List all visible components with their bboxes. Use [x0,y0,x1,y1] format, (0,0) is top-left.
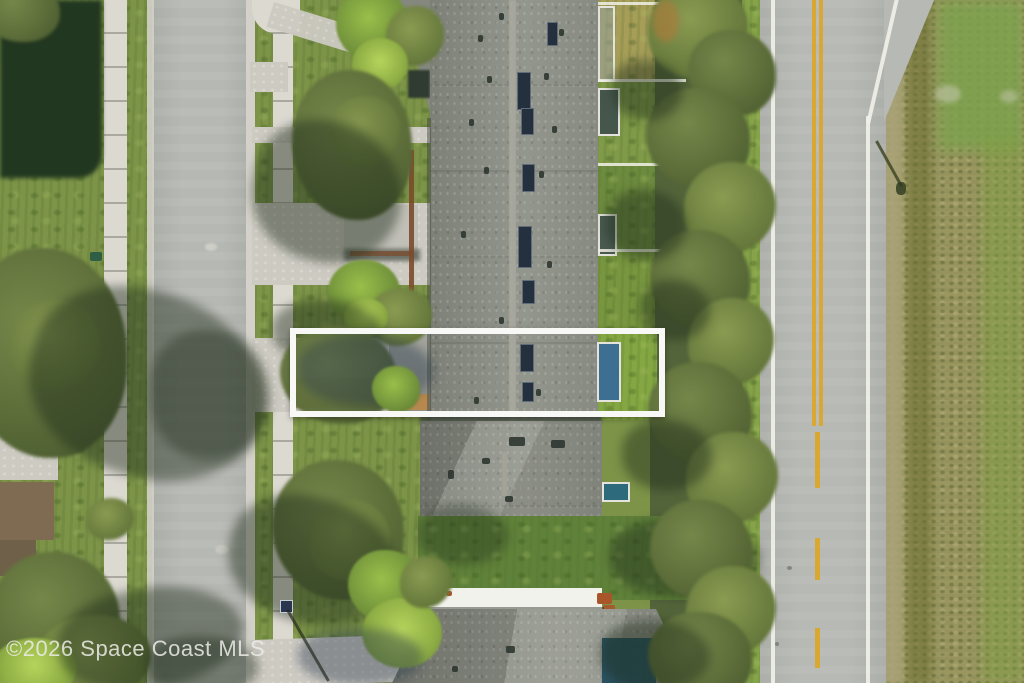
tree-shadow [150,330,270,460]
center-line-yellow-dash [815,432,820,488]
field-green-patch [938,0,1024,150]
roof-vent [482,458,490,464]
lane-line-white-right [866,116,870,683]
roof-ridge [502,452,507,496]
roof-vent [551,440,565,448]
roof-vent [547,261,552,268]
road-debris [787,566,792,570]
screened-lanai-teal [602,482,630,502]
roof-vent [544,73,549,80]
roof-vent [484,167,489,174]
roof-vent [461,231,466,238]
roof-vent [469,119,474,126]
tree-shadow [622,420,712,490]
screened-lanai [598,6,615,82]
center-line-yellow-solid [812,0,816,426]
driveway-apron [250,62,288,92]
field-bare-spot [935,85,961,103]
center-line-yellow-dash [815,628,820,668]
courtyard-gap [408,70,430,98]
drainage-swale [908,0,932,683]
rust-debris [597,593,612,604]
tree-shadow [612,60,682,120]
white-flat-roof [428,588,602,609]
property-highlight-box [290,328,665,417]
dry-foliage [653,0,679,42]
skylight [518,226,532,268]
field-green-edge [982,140,1024,683]
skylight [547,22,558,46]
road-debris [775,642,779,646]
skylight [521,108,534,135]
roof-vent [539,171,544,178]
utility-pole [896,182,906,195]
roof-vent [487,76,492,83]
center-line-yellow-solid [819,0,823,426]
tree-shadow-on-walk [298,628,423,683]
skylight [522,164,535,192]
center-line-yellow-dash [815,538,820,580]
roof-vent [499,13,504,20]
roof-vent [499,317,504,324]
watermark: ©2026 Space Coast MLS [6,636,265,662]
utility-box [90,252,102,261]
skylight [517,72,531,110]
roof-vent [478,35,483,42]
roof-vent [552,126,557,133]
roof-vent [559,29,564,36]
street-stain [205,243,217,251]
skylight [522,280,535,304]
field-bare-spot [1000,90,1018,103]
tree-shadow [606,190,686,260]
aerial-photo: ©2026 Space Coast MLS [0,0,1024,683]
roof-vent [505,496,513,502]
neighbor-roof [0,482,54,540]
street-stain [215,545,229,554]
roof-vent [452,666,458,672]
roof-vent [448,470,454,479]
roof-vent [509,437,525,446]
roof-vent [506,646,515,653]
